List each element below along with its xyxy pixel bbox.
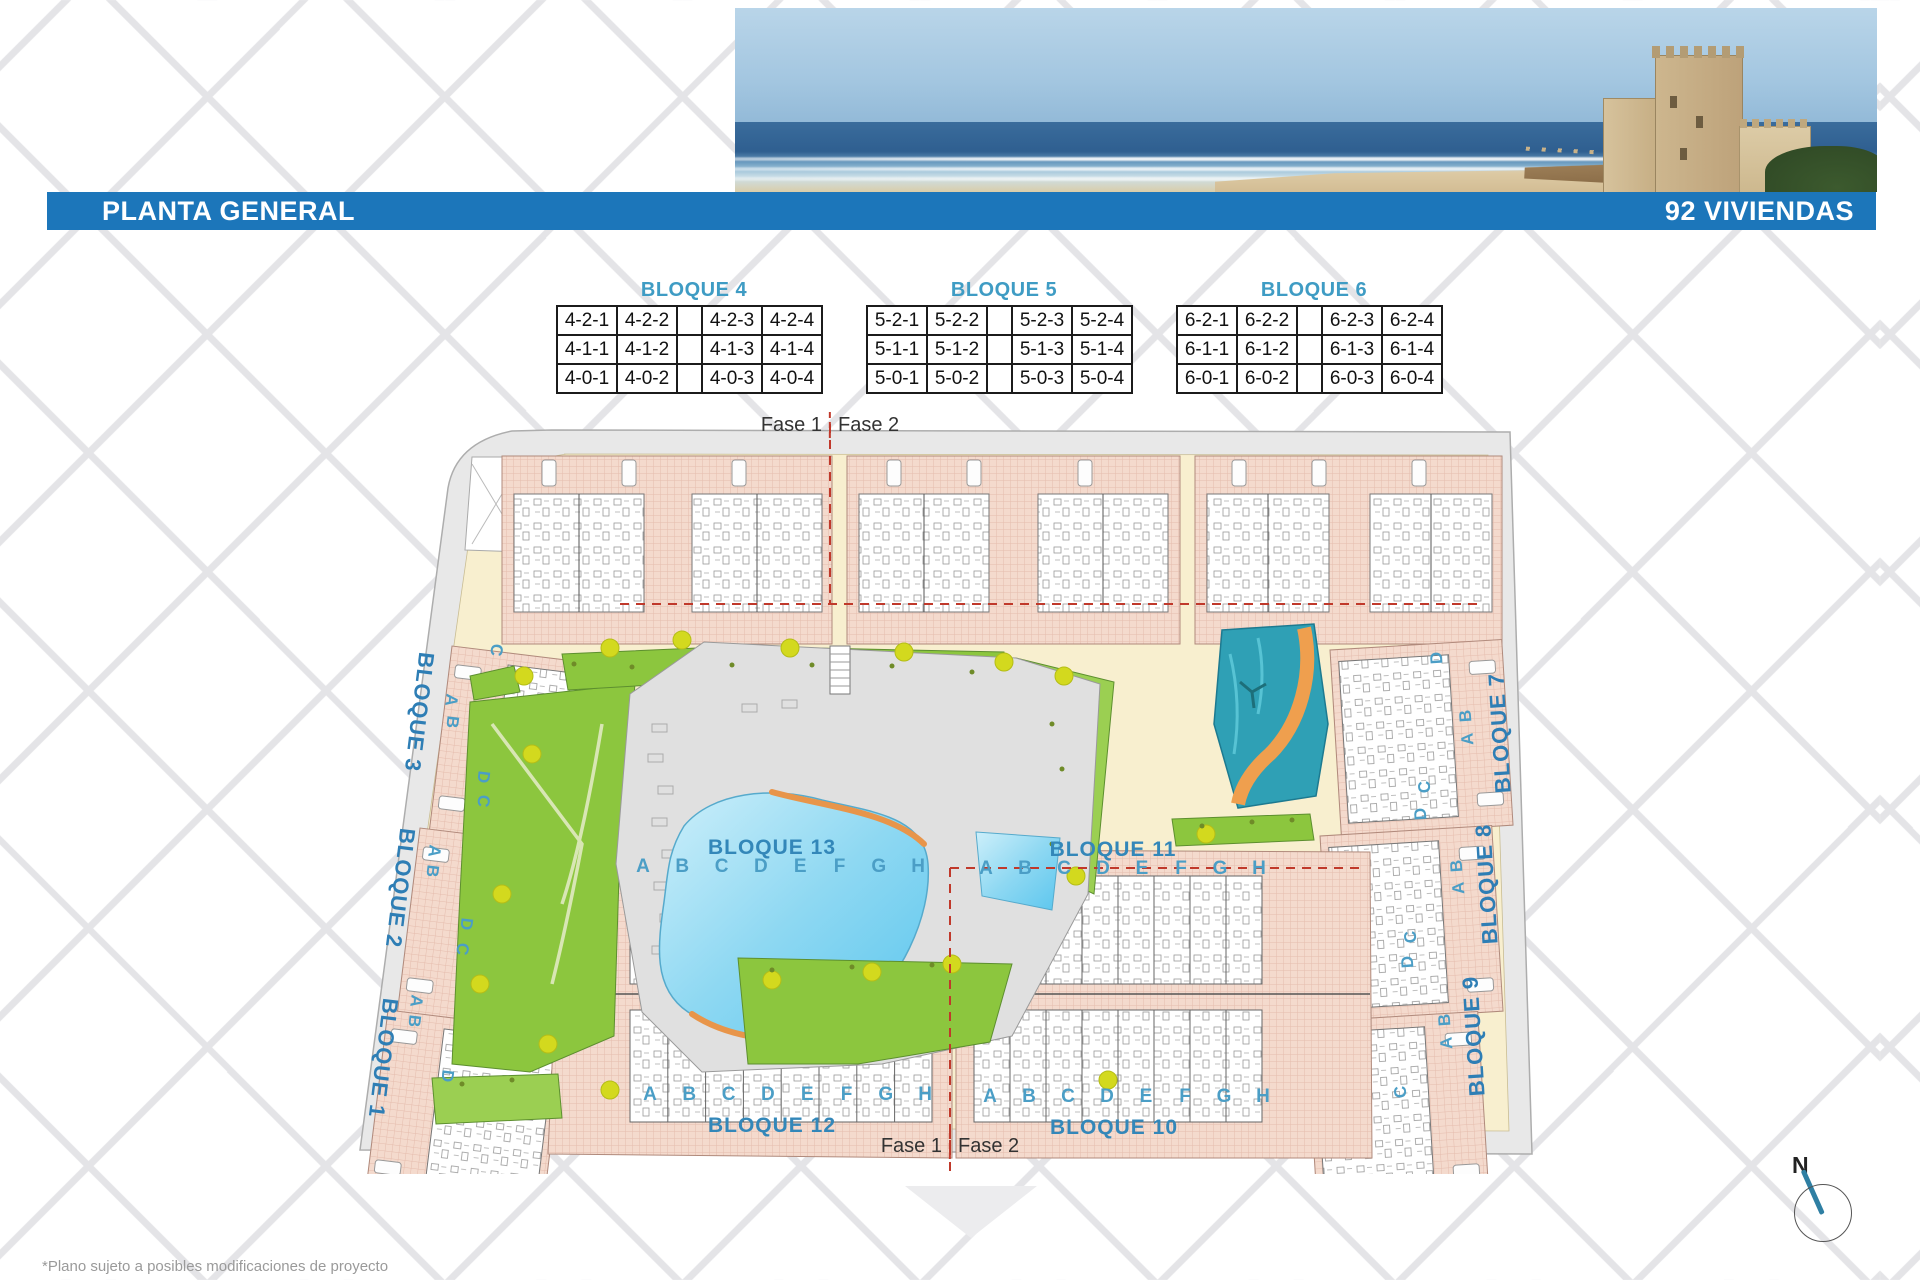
unit-cell: 5-1-3 (1012, 335, 1072, 364)
unit-cell: 5-1-4 (1072, 335, 1132, 364)
unit-number-grid: 4-2-14-2-24-2-34-2-44-1-14-1-24-1-34-1-4… (556, 305, 823, 394)
unit-cell-spacer (987, 306, 1012, 335)
building-cluster-bloque7 (1330, 639, 1513, 835)
unit-cell-spacer (1297, 306, 1322, 335)
unit-cell: 5-1-1 (867, 335, 927, 364)
unit-cell: 4-2-2 (617, 306, 677, 335)
unit-cell: 5-0-2 (927, 364, 987, 393)
beach-photo (735, 8, 1877, 192)
unit-cell: 6-2-1 (1177, 306, 1237, 335)
unit-cell: 6-1-3 (1322, 335, 1382, 364)
unit-cell: 4-0-1 (557, 364, 617, 393)
unit-cell: 6-1-1 (1177, 335, 1237, 364)
unit-table-title: BLOQUE 6 (1176, 279, 1452, 302)
tower-window (1670, 96, 1677, 108)
unit-cell: 5-0-3 (1012, 364, 1072, 393)
castle-annex (1603, 98, 1659, 192)
unit-cell-spacer (677, 364, 702, 393)
tower-window (1696, 116, 1703, 128)
unit-table-bloque-6: BLOQUE 66-2-16-2-26-2-36-2-46-1-16-1-26-… (1176, 279, 1456, 394)
unit-cell: 5-2-3 (1012, 306, 1072, 335)
unit-cell: 5-2-1 (867, 306, 927, 335)
unit-cell: 6-2-3 (1322, 306, 1382, 335)
unit-cell: 4-0-4 (762, 364, 822, 393)
unit-cell: 4-2-1 (557, 306, 617, 335)
unit-cell: 4-1-3 (702, 335, 762, 364)
unit-cell: 4-0-3 (702, 364, 762, 393)
deck-stairs (830, 646, 850, 694)
page-title: PLANTA GENERAL (102, 196, 355, 227)
unit-number-grid: 5-2-15-2-25-2-35-2-45-1-15-1-25-1-35-1-4… (866, 305, 1133, 394)
site-plan (352, 424, 1537, 1174)
unit-table-bloque-4: BLOQUE 44-2-14-2-24-2-34-2-44-1-14-1-24-… (556, 279, 836, 394)
unit-cell: 5-2-4 (1072, 306, 1132, 335)
unit-cell: 4-2-3 (702, 306, 762, 335)
unit-cell-spacer (677, 306, 702, 335)
dwelling-count: 92 VIVIENDAS (1665, 196, 1854, 227)
unit-cell: 6-0-2 (1237, 364, 1297, 393)
tower-window (1680, 148, 1687, 160)
top-building-cluster-bloque4 (502, 456, 832, 644)
unit-cell: 5-0-1 (867, 364, 927, 393)
unit-cell: 5-1-2 (927, 335, 987, 364)
unit-number-grid: 6-2-16-2-26-2-36-2-46-1-16-1-26-1-36-1-4… (1176, 305, 1443, 394)
unit-cell-spacer (987, 364, 1012, 393)
coastal-vegetation (1765, 146, 1877, 192)
unit-cell-spacer (1297, 335, 1322, 364)
unit-cell: 4-1-1 (557, 335, 617, 364)
compass-circle (1794, 1184, 1852, 1242)
unit-table-bloque-5: BLOQUE 55-2-15-2-25-2-35-2-45-1-15-1-25-… (866, 279, 1146, 394)
unit-table-title: BLOQUE 4 (556, 279, 832, 302)
unit-cell-spacer (677, 335, 702, 364)
compass-icon: N (1778, 1152, 1878, 1262)
watchtower (1655, 55, 1743, 192)
unit-cell: 6-2-2 (1237, 306, 1297, 335)
unit-cell: 6-1-4 (1382, 335, 1442, 364)
unit-cell: 6-0-1 (1177, 364, 1237, 393)
unit-cell: 4-2-4 (762, 306, 822, 335)
garden-west (452, 684, 635, 1072)
top-building-cluster-bloque6 (1195, 456, 1502, 644)
title-banner: PLANTA GENERAL 92 VIVIENDAS (47, 192, 1876, 230)
disclaimer-footnote: *Plano sujeto a posibles modificaciones … (42, 1258, 388, 1275)
planta-general-page: PLANTA GENERAL 92 VIVIENDAS BLOQUE 44-2-… (0, 0, 1920, 1280)
lazy-river (1214, 624, 1328, 808)
unit-cell: 6-1-2 (1237, 335, 1297, 364)
unit-cell-spacer (1297, 364, 1322, 393)
unit-table-title: BLOQUE 5 (866, 279, 1142, 302)
crosshatch-triangle (905, 1186, 1037, 1238)
top-building-cluster-bloque5 (847, 456, 1180, 644)
unit-cell: 4-0-2 (617, 364, 677, 393)
unit-cell-spacer (987, 335, 1012, 364)
garden-southwest (432, 1074, 562, 1124)
unit-cell: 6-0-4 (1382, 364, 1442, 393)
unit-cell: 5-2-2 (927, 306, 987, 335)
unit-cell: 4-1-2 (617, 335, 677, 364)
unit-cell: 4-1-4 (762, 335, 822, 364)
unit-cell: 6-0-3 (1322, 364, 1382, 393)
unit-cell: 6-2-4 (1382, 306, 1442, 335)
unit-cell: 5-0-4 (1072, 364, 1132, 393)
